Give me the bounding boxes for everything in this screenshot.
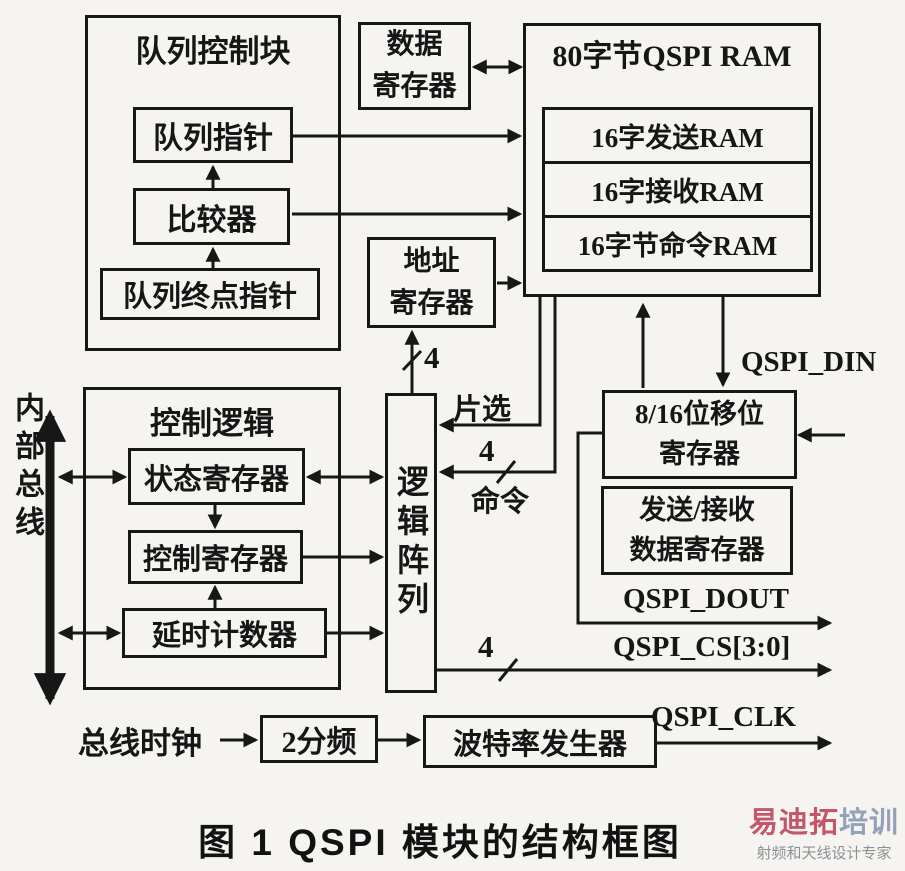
qspi-block-diagram: 队列控制块 队列指针 比较器 队列终点指针 数据 寄存器 80字节QSPI RA…	[0, 0, 905, 871]
watermark: 易迪拓培训 射频和天线设计专家	[746, 808, 902, 863]
figure-caption: 图 1 QSPI 模块的结构框图	[130, 812, 750, 866]
data-register-block: 数据 寄存器	[358, 22, 471, 110]
addr-width-label: 4	[424, 340, 440, 376]
data-register-line1: 数据	[372, 24, 456, 66]
txrx-register-line2: 数据寄存器	[630, 531, 765, 570]
txrx-register-line1: 发送/接收	[630, 491, 765, 530]
comparator-block: 比较器	[133, 188, 290, 245]
control-logic-title: 控制逻辑	[150, 398, 274, 443]
queue-pointer-block: 队列指针	[133, 107, 293, 163]
queue-end-pointer-block: 队列终点指针	[100, 268, 320, 320]
status-register-block: 状态寄存器	[128, 448, 305, 505]
qspi-dout-label: QSPI_DOUT	[623, 583, 789, 616]
shift-register-block: 8/16位移位 寄存器	[602, 390, 797, 479]
qspi-ram-title: 80字节QSPI RAM	[552, 31, 791, 75]
bus-width-slash-cs	[499, 659, 517, 681]
watermark-brand-primary: 易迪拓	[749, 807, 839, 839]
delay-counter-block: 延时计数器	[122, 608, 327, 658]
bus-width-slash-addr	[403, 351, 421, 370]
control-register-block: 控制寄存器	[128, 530, 303, 584]
watermark-brand: 易迪拓培训	[746, 808, 902, 840]
address-register-line1: 地址	[389, 241, 473, 283]
internal-bus-label: 内部总线	[4, 392, 48, 544]
qspi-ram-inner: 16字发送RAM 16字接收RAM 16字节命令RAM	[542, 107, 813, 272]
txrx-data-register-block: 发送/接收 数据寄存器	[601, 486, 793, 575]
ram-row-transmit: 16字发送RAM	[545, 110, 810, 164]
watermark-tagline: 射频和天线设计专家	[746, 842, 902, 863]
command-label: 命令	[471, 478, 529, 520]
cmd-width-label: 4	[479, 433, 495, 469]
watermark-brand-secondary: 培训	[839, 807, 899, 839]
divide-by-2-block: 2分频	[260, 715, 378, 763]
qspi-din-label: QSPI_DIN	[741, 346, 876, 379]
address-register-line2: 寄存器	[389, 283, 473, 325]
bus-clock-label: 总线时钟	[78, 718, 202, 763]
data-register-line2: 寄存器	[372, 66, 456, 108]
shift-register-line1: 8/16位移位	[635, 395, 764, 434]
qspi-cs-label: QSPI_CS[3:0]	[613, 631, 790, 664]
shift-register-line2: 寄存器	[635, 435, 764, 474]
chip-select-label: 片选	[453, 386, 511, 428]
ram-row-receive: 16字接收RAM	[545, 164, 810, 218]
logic-array-block: 逻辑阵列	[385, 393, 437, 693]
baud-rate-generator-block: 波特率发生器	[423, 715, 657, 768]
cs-width-label: 4	[478, 629, 494, 665]
qspi-clk-label: QSPI_CLK	[651, 701, 796, 734]
ram-row-command: 16字节命令RAM	[545, 218, 810, 269]
queue-control-block-title: 队列控制块	[136, 26, 291, 71]
address-register-block: 地址 寄存器	[367, 237, 496, 328]
logic-array-label: 逻辑阵列	[388, 465, 434, 621]
